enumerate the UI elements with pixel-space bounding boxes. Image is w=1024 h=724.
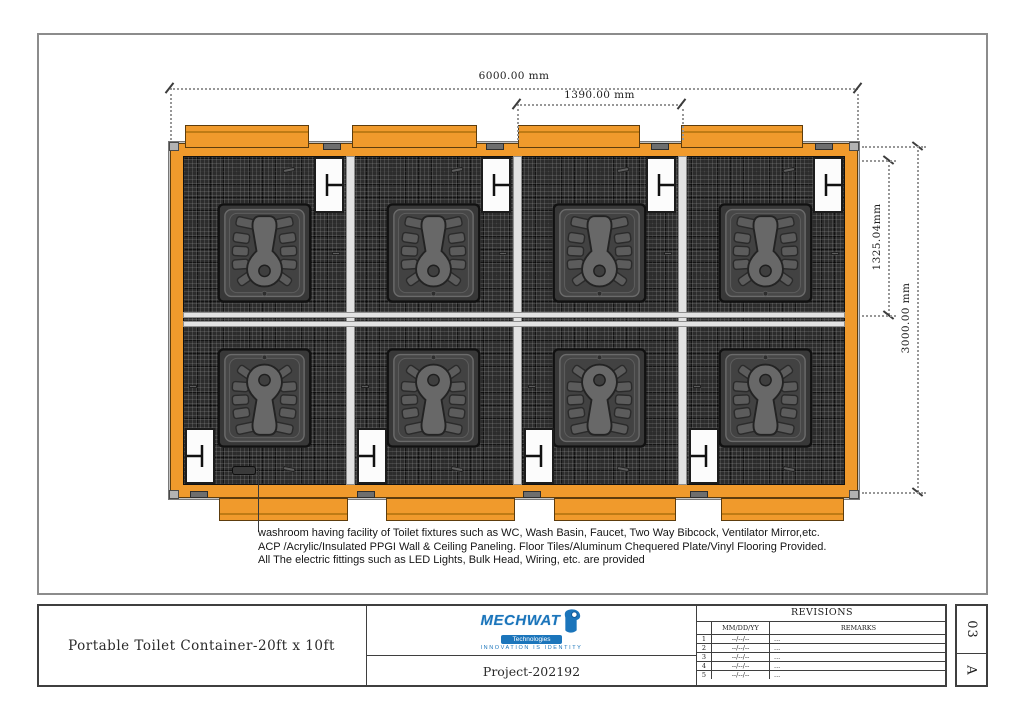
squat-toilet-icon (217, 348, 312, 448)
revisions-header: REVISIONS (697, 604, 947, 622)
extension-line (857, 94, 859, 140)
revision-row: 4 --/--/-- ... (697, 662, 947, 671)
door-icon (314, 157, 344, 213)
extension-line (862, 160, 896, 162)
extension-line (862, 492, 926, 494)
drawing-sheet: 6000.00 mm 1390.00 mm 1325.04mm 3000.00 … (0, 0, 1024, 724)
door-icon (813, 157, 843, 213)
dim-line (888, 160, 890, 315)
dim-line (917, 146, 919, 492)
logo-brand-text: MECHWAT (481, 612, 561, 629)
company-logo: MECHWAT Technologies INNOVATION IS IDENT… (367, 604, 696, 656)
hinge-block (523, 491, 541, 498)
corner-casting (849, 490, 859, 499)
corner-casting (169, 490, 179, 499)
door-icon (185, 428, 215, 484)
revisions-table: REVISIONS MM/DD/YY REMARKS 1 --/--/-- ..… (697, 604, 947, 687)
revision-row: 5 --/--/-- ... (697, 671, 947, 679)
toilet-cubicle (355, 327, 513, 485)
corner-casting (849, 142, 859, 151)
dim-partition-depth: 1325.04mm (871, 204, 883, 271)
door-icon (357, 428, 387, 484)
col-no (697, 622, 712, 634)
fixture-mark (332, 252, 340, 255)
col-remarks: REMARKS (770, 622, 947, 634)
logo-division-text: Technologies (501, 635, 563, 644)
squat-toilet-icon (386, 203, 481, 303)
dim-overall-depth: 3000.00 mm (900, 283, 912, 354)
sheet-number-box: 03 A (955, 604, 988, 687)
dim-line (517, 104, 682, 106)
fixture-mark (283, 167, 296, 173)
fixture-mark (783, 167, 796, 173)
fixture-mark (617, 466, 630, 472)
fixture-mark (189, 385, 197, 388)
hinge-block (357, 491, 375, 498)
fixture-mark (499, 252, 507, 255)
revision-row: 3 --/--/-- ... (697, 653, 947, 662)
extension-line (517, 109, 519, 140)
door-icon (524, 428, 554, 484)
sheet-number: 03 (964, 620, 979, 639)
extension-line (862, 315, 896, 317)
project-number: Project-202192 (367, 657, 696, 686)
sheet-rev-cell: A (957, 656, 986, 686)
corner-casting (169, 142, 179, 151)
squat-toilet-icon (217, 203, 312, 303)
annotation-line: All The electric fittings such as LED Li… (258, 554, 926, 568)
toilet-cubicle (183, 156, 346, 312)
roof-panel (219, 498, 348, 521)
fixture-mark (693, 385, 701, 388)
title-block-center: MECHWAT Technologies INNOVATION IS IDENT… (367, 604, 697, 687)
extension-line (170, 94, 172, 140)
door-icon (646, 157, 676, 213)
fixture-mark (664, 252, 672, 255)
roof-panel (185, 125, 309, 148)
door-icon (481, 157, 511, 213)
hinge-block (190, 491, 208, 498)
toilet-cubicle (355, 156, 513, 312)
hinge-block (690, 491, 708, 498)
toilet-cubicle (522, 156, 678, 312)
toilet-cubicle (522, 327, 678, 485)
drain-fitting (232, 466, 256, 475)
annotation-note: washroom having facility of Toilet fixtu… (258, 527, 926, 568)
roof-panel (681, 125, 803, 148)
fixture-mark (451, 167, 464, 173)
squat-toilet-icon (386, 348, 481, 448)
middle-wall (183, 312, 845, 318)
dim-overall-width: 6000.00 mm (170, 70, 858, 82)
col-date: MM/DD/YY (712, 622, 770, 634)
fixture-mark (451, 466, 464, 472)
sheet-number-cell: 03 (957, 606, 986, 654)
hinge-block (323, 143, 341, 150)
fixture-mark (617, 167, 630, 173)
fixture-mark (783, 466, 796, 472)
hinge-block (815, 143, 833, 150)
roof-panel (554, 498, 676, 521)
hinge-block (651, 143, 669, 150)
fixture-mark (283, 466, 296, 472)
squat-toilet-icon (552, 348, 647, 448)
toilet-cubicle (687, 327, 845, 485)
leader-line (258, 470, 259, 532)
squat-toilet-icon (718, 203, 813, 303)
fixture-mark (361, 385, 369, 388)
logo-hand-icon (562, 608, 582, 634)
logo-tagline-text: INNOVATION IS IDENTITY (481, 645, 583, 651)
squat-toilet-icon (718, 348, 813, 448)
extension-line (682, 109, 684, 140)
drawing-title: Portable Toilet Container-20ft x 10ft (37, 604, 367, 687)
sheet-revision: A (964, 665, 979, 675)
revision-row: 1 --/--/-- ... (697, 635, 947, 644)
hinge-block (486, 143, 504, 150)
door-icon (689, 428, 719, 484)
roof-panel (721, 498, 844, 521)
extension-line (862, 146, 926, 148)
roof-panel (518, 125, 640, 148)
revisions-column-headers: MM/DD/YY REMARKS (697, 622, 947, 635)
roof-panel (352, 125, 477, 148)
revision-row: 2 --/--/-- ... (697, 644, 947, 653)
fixture-mark (528, 385, 536, 388)
annotation-line: ACP /Acrylic/Insulated PPGI Wall & Ceili… (258, 541, 926, 555)
squat-toilet-icon (552, 203, 647, 303)
toilet-cubicle (687, 156, 845, 312)
roof-panel (386, 498, 515, 521)
annotation-line: washroom having facility of Toilet fixtu… (258, 527, 926, 541)
toilet-cubicle (183, 327, 346, 485)
dim-module-width: 1390.00 mm (517, 89, 682, 101)
dim-line (170, 88, 858, 90)
fixture-mark (831, 252, 839, 255)
